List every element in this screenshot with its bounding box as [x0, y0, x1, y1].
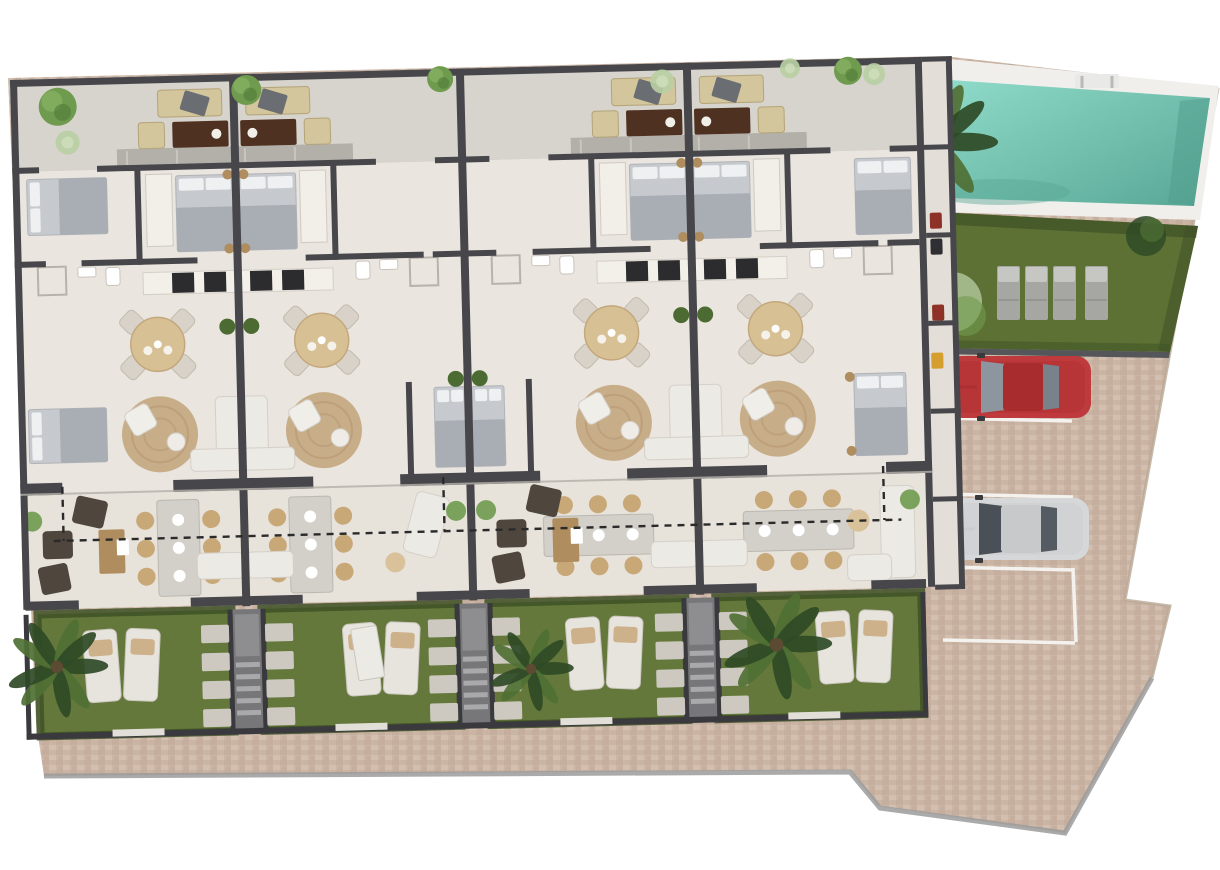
bed — [28, 408, 107, 464]
bed — [175, 174, 235, 251]
garden-gate — [112, 728, 164, 736]
patio-item — [930, 238, 942, 254]
garden-gate — [560, 717, 612, 725]
car-silver — [945, 495, 1089, 563]
estate — [0, 53, 968, 740]
patio-item — [931, 352, 943, 368]
car-red — [947, 353, 1091, 421]
garden-gate — [335, 723, 387, 731]
dining-table-large — [268, 495, 354, 593]
bed — [237, 173, 297, 250]
patio-item — [932, 304, 944, 320]
dining-table-large — [136, 499, 222, 597]
sun-lounger-3 — [1053, 266, 1076, 320]
bed — [629, 163, 689, 240]
pool-lawn — [922, 212, 1198, 352]
garden-gate — [788, 711, 840, 719]
dining-table-large — [743, 489, 855, 572]
bed — [434, 387, 468, 468]
patio-item — [930, 212, 942, 228]
site-plan-stage — [0, 0, 1220, 870]
bed — [27, 178, 108, 236]
bed — [691, 161, 751, 238]
bed — [472, 386, 506, 467]
sun-lounger-4 — [1085, 266, 1108, 320]
bed — [854, 372, 908, 455]
site-plan-svg — [0, 0, 1220, 870]
sun-lounger-2 — [1025, 266, 1048, 320]
bed — [854, 157, 912, 234]
sun-lounger-1 — [997, 266, 1020, 320]
